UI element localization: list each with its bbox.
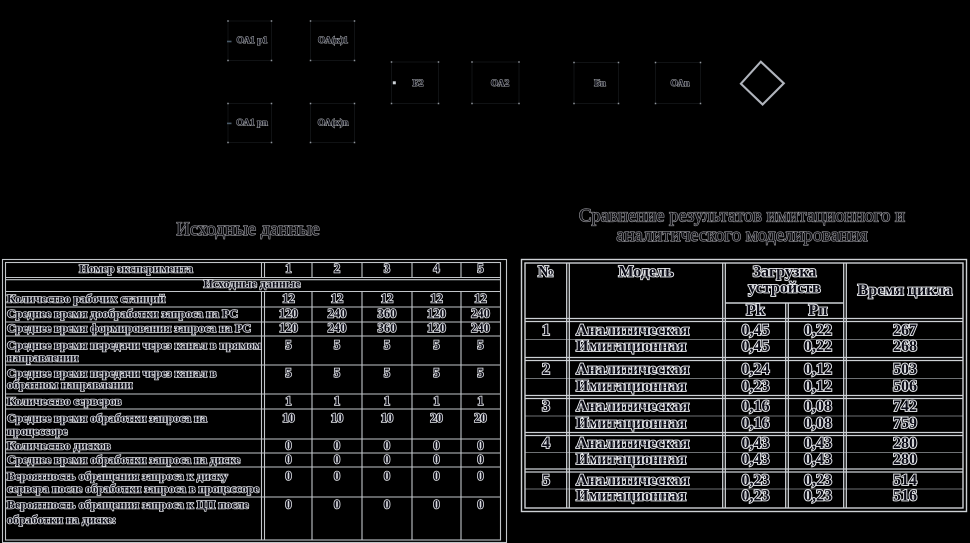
svg-text:1: 1 [477,394,483,408]
svg-text:0: 0 [285,452,291,466]
svg-text:0: 0 [477,469,483,483]
svg-text:5: 5 [477,261,483,275]
svg-text:4: 4 [542,435,550,452]
svg-text:обратном направлении: обратном направлении [7,377,133,391]
svg-text:Исходные данные: Исходные данные [204,276,302,290]
svg-text:Аналитическая: Аналитическая [576,435,690,452]
svg-text:0,24: 0,24 [742,361,770,378]
svg-text:5: 5 [285,366,291,380]
svg-text:268: 268 [893,338,917,355]
svg-text:503: 503 [893,361,917,378]
svg-text:Номер эксперимента: Номер эксперимента [79,261,193,275]
svg-text:0,16: 0,16 [742,398,770,415]
svg-text:Аналитическая: Аналитическая [576,472,690,489]
svg-text:5: 5 [542,472,550,489]
svg-text:обработки на диске:: обработки на диске: [7,512,116,526]
svg-text:1: 1 [334,394,340,408]
svg-text:Модель: Модель [618,264,674,281]
svg-text:0: 0 [477,497,483,511]
svg-text:5: 5 [334,338,340,352]
svg-text:12: 12 [430,291,443,305]
svg-text:направлении: направлении [7,350,79,364]
svg-text:Исходные данные: Исходные данные [176,219,319,240]
svg-text:0: 0 [334,438,340,452]
svg-text:Количество рабочих станций: Количество рабочих станций [7,291,165,305]
svg-text:12: 12 [474,291,487,305]
svg-text:Аналитическая: Аналитическая [576,361,690,378]
svg-text:0,23: 0,23 [804,488,832,505]
svg-text:0,23: 0,23 [742,488,770,505]
svg-text:Аналитическая: Аналитическая [576,322,690,339]
svg-text:Б2: Б2 [412,79,423,89]
svg-text:10: 10 [381,411,394,425]
svg-text:360: 360 [378,321,397,335]
svg-text:240: 240 [328,321,347,335]
svg-text:759: 759 [893,415,917,432]
svg-text:120: 120 [427,306,446,320]
svg-text:3: 3 [384,261,390,275]
svg-text:267: 267 [893,322,917,339]
svg-text:Pk: Pk [746,302,765,319]
svg-text:1: 1 [542,322,550,339]
svg-text:514: 514 [893,472,917,489]
svg-text:20: 20 [474,411,487,425]
svg-text:0,23: 0,23 [742,472,770,489]
svg-text:2: 2 [542,361,550,378]
svg-text:0: 0 [433,469,439,483]
svg-text:240: 240 [471,306,490,320]
svg-text:№: № [538,264,554,281]
svg-text:240: 240 [471,321,490,335]
svg-text:ОА1 р1: ОА1 р1 [237,36,268,46]
svg-text:Вероятность обращения запроса: Вероятность обращения запроса к ЦП после [7,497,249,511]
svg-text:Имитационная: Имитационная [576,415,686,432]
svg-text:0: 0 [285,497,291,511]
svg-text:0,43: 0,43 [742,435,770,452]
svg-text:3: 3 [542,398,550,415]
svg-text:Количество дисков: Количество дисков [7,438,111,452]
svg-text:1: 1 [384,394,390,408]
svg-text:0: 0 [334,469,340,483]
svg-text:1: 1 [285,394,291,408]
svg-text:Рп: Рп [809,302,828,319]
svg-text:0,43: 0,43 [742,451,770,468]
svg-text:20: 20 [430,411,443,425]
svg-text:5: 5 [285,338,291,352]
svg-text:10: 10 [282,411,295,425]
svg-text:0: 0 [384,469,390,483]
svg-text:Сравнение результатов имитацио: Сравнение результатов имитационного и [579,205,905,226]
svg-text:0,43: 0,43 [804,435,832,452]
svg-text:0: 0 [433,497,439,511]
svg-text:0,22: 0,22 [804,338,832,355]
svg-text:0,08: 0,08 [804,415,832,432]
svg-text:Бn: Бn [594,79,606,89]
svg-text:742: 742 [893,398,917,415]
svg-text:0,08: 0,08 [804,398,832,415]
svg-text:0: 0 [384,452,390,466]
svg-text:1: 1 [433,394,439,408]
svg-text:0: 0 [285,469,291,483]
svg-text:0: 0 [384,497,390,511]
svg-text:240: 240 [328,306,347,320]
svg-text:506: 506 [893,378,917,395]
svg-text:0: 0 [334,452,340,466]
svg-text:12: 12 [381,291,394,305]
svg-text:ОА(к)1: ОА(к)1 [318,35,349,46]
svg-text:120: 120 [427,321,446,335]
svg-text:5: 5 [334,366,340,380]
svg-text:0: 0 [433,452,439,466]
svg-text:сервера после обработки запрос: сервера после обработки запроса в процес… [7,481,260,495]
svg-text:10: 10 [331,411,344,425]
svg-text:360: 360 [378,306,397,320]
svg-text:0,45: 0,45 [742,338,770,355]
svg-text:4: 4 [433,261,440,275]
svg-text:0: 0 [285,438,291,452]
svg-text:5: 5 [384,338,390,352]
svg-text:0,12: 0,12 [804,378,832,395]
svg-text:0: 0 [433,438,439,452]
svg-text:Имитационная: Имитационная [576,338,686,355]
svg-text:280: 280 [893,435,917,452]
svg-text:0: 0 [384,438,390,452]
svg-text:5: 5 [384,366,390,380]
svg-text:0,16: 0,16 [742,415,770,432]
svg-text:Среднее время дообработки запр: Среднее время дообработки запроса на РС [7,306,238,320]
svg-text:516: 516 [893,488,917,505]
svg-text:Имитационная: Имитационная [576,378,686,395]
svg-text:0: 0 [477,438,483,452]
svg-text:0,22: 0,22 [804,322,832,339]
svg-text:ОА2: ОА2 [491,79,510,89]
svg-text:Время цикла: Время цикла [858,282,953,299]
svg-text:5: 5 [433,366,439,380]
svg-text:0,23: 0,23 [742,378,770,395]
svg-text:ОА1 рn: ОА1 рn [236,119,268,129]
svg-text:Загрузка: Загрузка [753,264,817,281]
svg-text:аналитического моделирования: аналитического моделирования [616,225,868,246]
svg-text:процессоре: процессоре [7,424,68,438]
svg-text:12: 12 [282,291,295,305]
svg-text:1: 1 [285,261,291,275]
svg-text:Имитационная: Имитационная [576,488,686,505]
svg-text:12: 12 [331,291,344,305]
svg-text:Среднее время обработки запрос: Среднее время обработки запроса на [7,411,207,425]
svg-text:Среднее время формирования зап: Среднее время формирования запроса на РС [7,321,251,335]
svg-text:5: 5 [477,338,483,352]
svg-text:Среднее время обработки запрос: Среднее время обработки запроса на диске [7,452,241,466]
svg-text:5: 5 [477,366,483,380]
svg-text:устройств: устройств [748,280,821,297]
svg-text:120: 120 [279,306,298,320]
svg-text:0: 0 [477,452,483,466]
svg-text:ОА(к)n: ОА(к)n [318,118,350,129]
svg-text:Аналитическая: Аналитическая [576,398,690,415]
svg-text:120: 120 [279,321,298,335]
svg-text:Имитационная: Имитационная [576,451,686,468]
svg-text:5: 5 [433,338,439,352]
svg-text:0,45: 0,45 [742,322,770,339]
svg-text:ОАn: ОАn [670,79,690,89]
svg-text:0,43: 0,43 [804,451,832,468]
svg-text:280: 280 [893,451,917,468]
svg-text:0: 0 [334,497,340,511]
svg-text:Количество серверов: Количество серверов [7,394,122,408]
svg-text:0,23: 0,23 [804,472,832,489]
svg-text:0,12: 0,12 [804,361,832,378]
svg-text:2: 2 [334,261,340,275]
